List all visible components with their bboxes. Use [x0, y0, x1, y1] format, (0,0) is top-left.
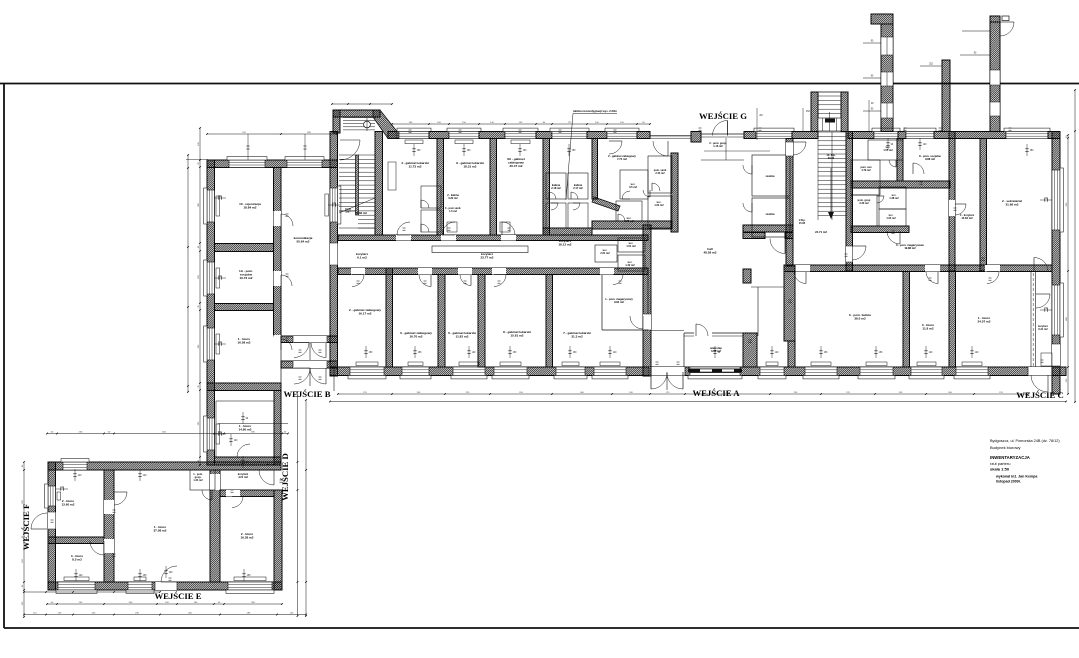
svg-text:korytarz18.12 m2: korytarz18.12 m2	[558, 239, 571, 247]
svg-text:2 - biuro13.60 m2: 2 - biuro13.60 m2	[61, 499, 74, 507]
svg-text:3 - biuro8.5 m2: 3 - biuro8.5 m2	[71, 554, 83, 562]
svg-text:wykonał inż. Jan Kempa: wykonał inż. Jan Kempa	[995, 475, 1038, 479]
svg-text:szatnia: szatnia	[765, 212, 775, 216]
svg-text:6A - gabinetzabiegowy20.47 m2: 6A - gabinetzabiegowy20.47 m2	[507, 157, 525, 168]
svg-text:kabina2.18 m2: kabina2.18 m2	[551, 183, 561, 190]
svg-text:WEJŚCIE B: WEJŚCIE B	[283, 389, 330, 399]
svg-text:1 - biuro37.08 m2: 1 - biuro37.08 m2	[153, 525, 166, 533]
svg-text:WEJŚCIE G: WEJŚCIE G	[699, 111, 747, 121]
svg-text:1 Klp.15.95: 1 Klp.15.95	[799, 219, 806, 225]
svg-text:24.71 m2: 24.71 m2	[815, 230, 827, 234]
svg-text:3 - biuro11.8 m2: 3 - biuro11.8 m2	[922, 323, 934, 331]
svg-text:listopad 2009r.: listopad 2009r.	[996, 480, 1021, 484]
svg-text:szatnia: szatnia	[765, 174, 775, 178]
svg-text:skala 1:50: skala 1:50	[990, 467, 1010, 472]
svg-text:korytarz4.21 m2: korytarz4.21 m2	[238, 472, 249, 479]
svg-text:WEJŚCIE F: WEJŚCIE F	[21, 504, 31, 551]
svg-text:4 - korytarz12.84 m2: 4 - korytarz12.84 m2	[960, 213, 975, 220]
svg-text:Bydgoszcz, ul. Pomorska 24B (d: Bydgoszcz, ul. Pomorska 24B (dz. 78/12)	[990, 439, 1060, 443]
svg-text:tablica na kondygnacji wys. 2.: tablica na kondygnacji wys. 2.20m	[573, 109, 617, 113]
svg-text:korytarz6.21 m2: korytarz6.21 m2	[1038, 325, 1048, 331]
svg-text:pom. sanit2.44 m2: pom. sanit2.44 m2	[654, 169, 667, 175]
svg-text:Budynek biurowy: Budynek biurowy	[990, 445, 1020, 450]
svg-text:1 - biuro14.80 m2: 1 - biuro14.80 m2	[238, 424, 251, 432]
svg-text:13.83 m2: 13.83 m2	[355, 211, 367, 215]
svg-text:2 - biuro16.38 m2: 2 - biuro16.38 m2	[240, 532, 253, 540]
svg-text:WEJŚCIE A: WEJŚCIE A	[692, 388, 740, 398]
svg-text:WEJŚCIE C: WEJŚCIE C	[1016, 390, 1064, 400]
svg-text:WEJŚCIE E: WEJŚCIE E	[154, 591, 201, 601]
svg-text:korytarz6.1 m2: korytarz6.1 m2	[356, 252, 368, 260]
svg-text:2 - kabina0.82 m2: 2 - kabina0.82 m2	[447, 194, 459, 200]
svg-text:1 - biuro16.58 m2: 1 - biuro16.58 m2	[237, 337, 250, 345]
svg-text:10.0515x?: 10.0515x?	[345, 209, 351, 214]
svg-text:korytarz23.77 m2: korytarz23.77 m2	[480, 252, 493, 260]
svg-text:wiatrolap6.02 m2: wiatrolap6.02 m2	[709, 346, 722, 353]
svg-text:INWENTARYZACJA: INWENTARYZACJA	[990, 455, 1030, 460]
svg-text:1A - pom.socjalne10.72 m2: 1A - pom.socjalne10.72 m2	[239, 269, 253, 280]
svg-text:WEJŚCIE D: WEJŚCIE D	[280, 453, 290, 501]
svg-text:kabina2.17 m2: kabina2.17 m2	[573, 183, 583, 190]
svg-text:1 - biuro24.07 m2: 1 - biuro24.07 m2	[977, 316, 990, 324]
svg-text:2M: 2M	[759, 115, 762, 117]
svg-text:pom. san4.79 m2: pom. san4.79 m2	[861, 166, 872, 172]
svg-text:rzut parteru: rzut parteru	[990, 461, 1010, 466]
